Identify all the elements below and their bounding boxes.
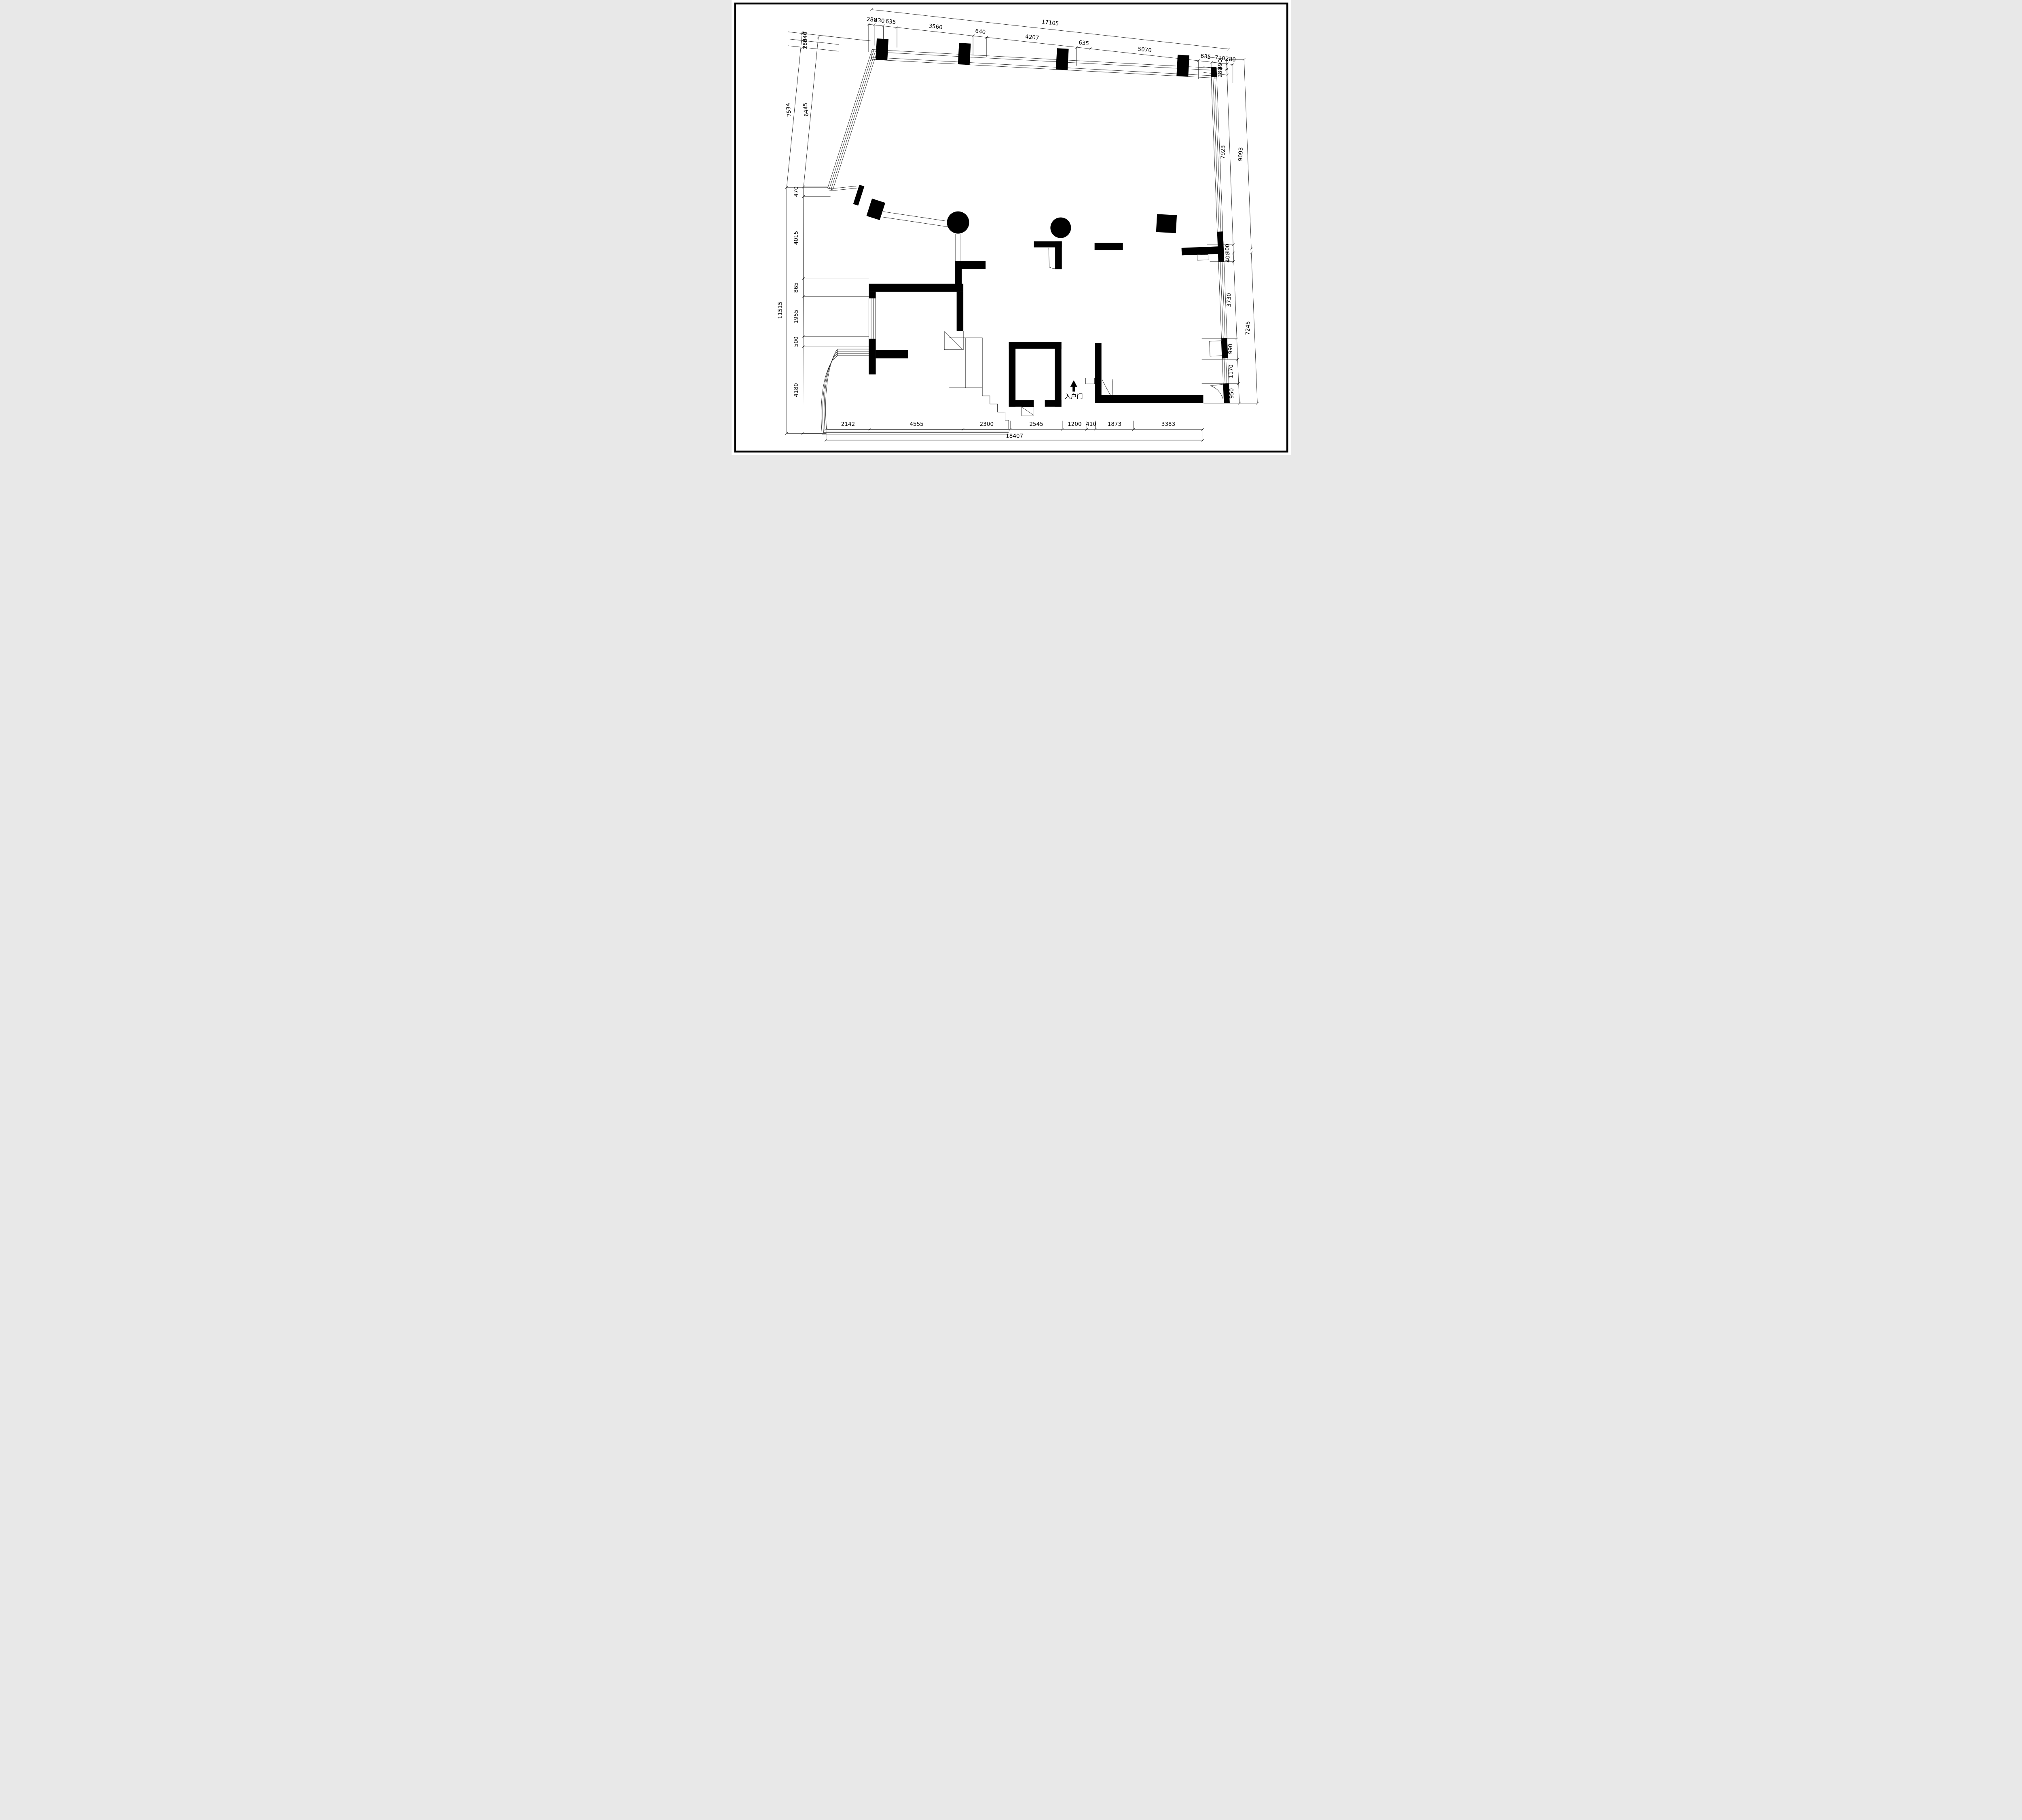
- dim-label: 1873: [1107, 421, 1121, 427]
- column: [1055, 48, 1068, 70]
- dim-label: 865: [793, 282, 799, 293]
- dim-label: 635: [1078, 39, 1089, 47]
- dim-label: 2300: [979, 421, 993, 427]
- dim-label: 470: [793, 186, 799, 197]
- dim-label: 990: [1227, 344, 1234, 354]
- round-column-1: [947, 212, 969, 234]
- cabinet: [1197, 254, 1208, 260]
- wall-dash: [1094, 243, 1123, 250]
- dim-label: 2545: [1029, 421, 1043, 427]
- column: [876, 38, 888, 60]
- wall-arm: [1181, 246, 1218, 255]
- floor-plan-canvas: 入户门 17105 280 430 635 3560 640 4207 635: [732, 0, 1291, 455]
- dim-label: 280: [1217, 67, 1223, 78]
- column: [1176, 55, 1189, 76]
- dim-label: 280: [802, 39, 808, 49]
- entrance-label: 入户门: [1064, 393, 1083, 400]
- dim-label: 400: [1225, 252, 1231, 262]
- dim-label: 18407: [1006, 433, 1023, 440]
- cabinet: [1209, 341, 1222, 356]
- dim-label: 2142: [841, 421, 854, 427]
- dim-label: 4015: [793, 231, 799, 245]
- dim-label: 1955: [793, 309, 799, 323]
- dim-label: 3383: [1161, 421, 1175, 427]
- dim-label: 635: [885, 18, 896, 26]
- cabinet: [1085, 378, 1094, 384]
- round-column-2: [1050, 218, 1071, 238]
- dim-label: 7245: [1244, 321, 1251, 335]
- dim-label: 4180: [793, 383, 799, 397]
- square-column: [1156, 214, 1176, 233]
- dim-label: 1170: [1228, 364, 1234, 378]
- dim-label: 410: [1086, 421, 1096, 427]
- floor-plan-page: 入户门 17105 280 430 635 3560 640 4207 635: [732, 0, 1291, 455]
- dim-label: 7923: [1220, 145, 1227, 159]
- dim-label: 950: [1229, 388, 1235, 399]
- dim-label: 1200: [1068, 421, 1081, 427]
- column: [958, 43, 971, 65]
- dim-label: 3730: [1226, 293, 1232, 307]
- dim-label: 635: [1200, 53, 1211, 61]
- dim-label: 9093: [1237, 147, 1244, 161]
- dim-label: 500: [793, 336, 799, 347]
- dim-label: 4555: [909, 421, 923, 427]
- dim-label: 11515: [777, 302, 783, 319]
- dim-label: 640: [975, 28, 986, 36]
- dim-label: 430: [874, 17, 884, 25]
